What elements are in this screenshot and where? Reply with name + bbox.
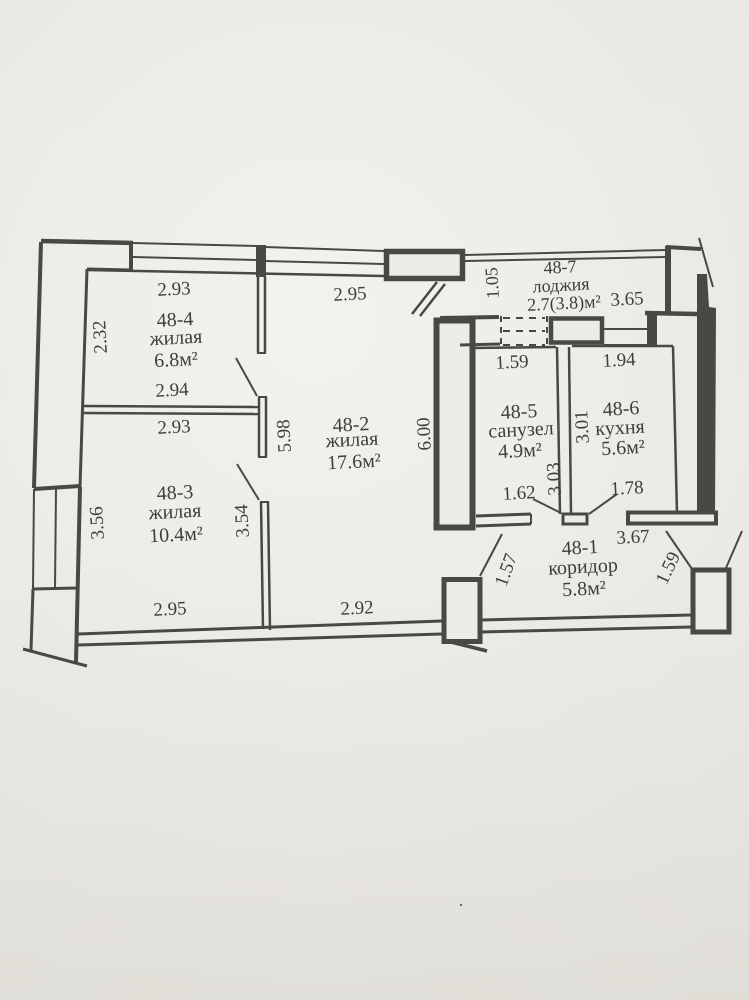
svg-text:1.59: 1.59 [652, 549, 685, 588]
svg-text:коридор: коридор [548, 554, 619, 580]
svg-text:2.92: 2.92 [340, 597, 374, 620]
svg-text:2.7(3.8)м²: 2.7(3.8)м² [527, 291, 602, 316]
svg-text:жилая: жилая [147, 500, 202, 525]
svg-text:3.01: 3.01 [571, 410, 594, 444]
svg-text:2.32: 2.32 [89, 320, 112, 354]
svg-text:4.9м²: 4.9м² [498, 439, 543, 463]
svg-text:жилая: жилая [324, 428, 379, 453]
svg-text:5.98: 5.98 [273, 419, 296, 453]
svg-text:5.8м²: 5.8м² [562, 577, 607, 601]
svg-text:1.94: 1.94 [602, 349, 637, 372]
svg-text:3.54: 3.54 [231, 503, 254, 538]
svg-text:1.78: 1.78 [610, 477, 644, 500]
svg-text:2.94: 2.94 [155, 379, 190, 402]
svg-text:1.59: 1.59 [495, 351, 529, 374]
svg-text:2.93: 2.93 [157, 416, 191, 439]
svg-text:3.67: 3.67 [616, 526, 650, 549]
svg-text:1.05: 1.05 [481, 267, 503, 300]
svg-text:жилая: жилая [148, 326, 203, 351]
svg-text:6.00: 6.00 [413, 417, 436, 451]
svg-text:2.95: 2.95 [153, 598, 187, 621]
svg-text:2.95: 2.95 [333, 283, 367, 306]
svg-text:5.6м²: 5.6м² [601, 436, 646, 460]
svg-text:1.57: 1.57 [491, 551, 522, 589]
svg-text:10.4м²: 10.4м² [149, 523, 204, 548]
svg-text:3.03: 3.03 [543, 462, 566, 496]
svg-text:1.62: 1.62 [502, 482, 536, 505]
svg-text:6.8м²: 6.8м² [154, 348, 199, 372]
svg-text:санузел: санузел [488, 417, 555, 442]
svg-text:17.6м²: 17.6м² [327, 450, 382, 475]
svg-text:3.56: 3.56 [86, 506, 109, 540]
svg-text:2.93: 2.93 [157, 278, 191, 301]
svg-text:3.65: 3.65 [610, 288, 644, 311]
